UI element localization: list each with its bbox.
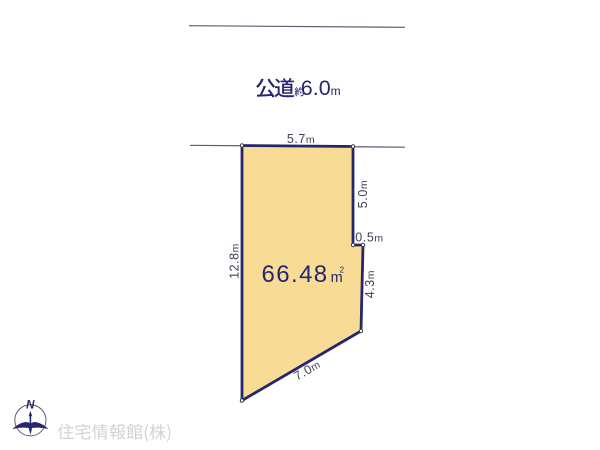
svg-text:5.7m: 5.7m [287, 132, 315, 146]
svg-text:6.0: 6.0 [301, 76, 331, 100]
svg-text:2: 2 [340, 266, 345, 275]
svg-text:0.5m: 0.5m [355, 230, 383, 244]
svg-text:m: m [331, 84, 341, 98]
svg-text:66.48: 66.48 [262, 261, 329, 288]
svg-text:5.0m: 5.0m [356, 180, 370, 208]
svg-text:N: N [26, 399, 35, 411]
svg-text:4.3m: 4.3m [363, 270, 377, 298]
svg-text:12.8m: 12.8m [228, 243, 242, 279]
